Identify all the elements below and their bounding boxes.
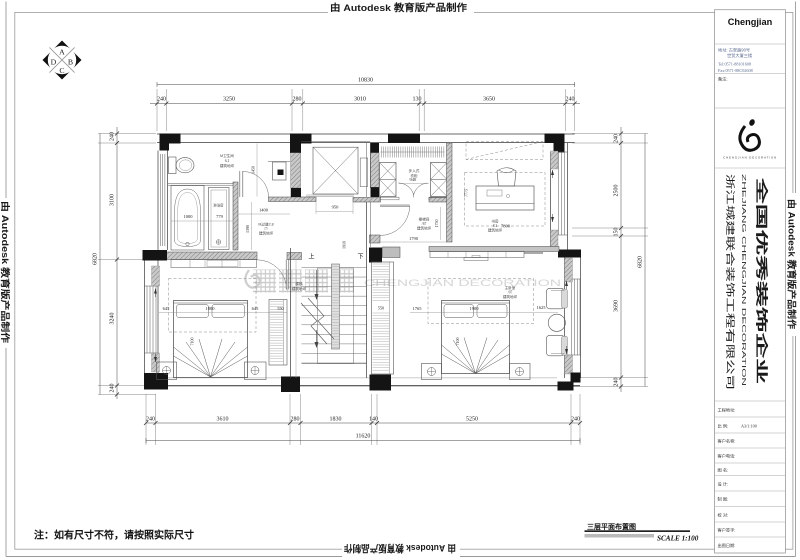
- svg-text:1400: 1400: [259, 208, 269, 213]
- svg-text:240: 240: [571, 417, 580, 423]
- svg-text:6820: 6820: [93, 253, 99, 265]
- svg-text:由 Autodesk 教育版产品制作: 由 Autodesk 教育版产品制作: [344, 542, 456, 554]
- svg-text:建筑地坪: 建筑地坪: [292, 286, 307, 291]
- svg-text:A3/1:100: A3/1:100: [741, 424, 757, 429]
- svg-text:楼梯: 楼梯: [295, 281, 303, 286]
- svg-text:240: 240: [110, 132, 116, 141]
- svg-text:140: 140: [369, 417, 378, 423]
- svg-text:5250: 5250: [466, 417, 478, 423]
- svg-text:645: 645: [163, 306, 171, 311]
- svg-text:645: 645: [252, 306, 260, 311]
- svg-text:240: 240: [110, 384, 116, 393]
- svg-text:1910: 1910: [342, 241, 347, 249]
- svg-text:全国优秀装饰企业: 全国优秀装饰企业: [755, 176, 770, 384]
- svg-text:150: 150: [614, 228, 620, 237]
- svg-text:/07: /07: [508, 291, 513, 295]
- svg-text:浙江城建联合装饰工程有限公司: 浙江城建联合装饰工程有限公司: [725, 174, 736, 390]
- svg-text:1000: 1000: [184, 214, 194, 219]
- svg-text:7775: 7775: [464, 189, 469, 197]
- svg-text:客户签字:: 客户签字:: [718, 527, 736, 534]
- svg-text:设 计:: 设 计:: [718, 481, 729, 488]
- svg-text:工程地址:: 工程地址:: [718, 407, 736, 414]
- svg-text:940: 940: [410, 177, 418, 182]
- svg-text:1750: 1750: [434, 220, 439, 228]
- svg-text:3690: 3690: [614, 300, 620, 312]
- svg-text:240: 240: [146, 417, 155, 423]
- svg-text:3010: 3010: [354, 97, 366, 103]
- svg-text:280: 280: [291, 417, 300, 423]
- svg-text:3100: 3100: [110, 194, 116, 206]
- svg-text:6.2: 6.2: [225, 159, 230, 163]
- svg-text:240: 240: [157, 97, 166, 103]
- svg-text:Tel:0571-88101608: Tel:0571-88101608: [718, 62, 751, 67]
- svg-text:比 例:: 比 例:: [718, 423, 729, 430]
- svg-text:三层平面布置图: 三层平面布置图: [587, 522, 636, 531]
- svg-text:7100: 7100: [190, 338, 195, 346]
- svg-text:由 Autodesk 教育版产品制作: 由 Autodesk 教育版产品制作: [787, 199, 798, 329]
- svg-text:M卫生间: M卫生间: [220, 153, 234, 158]
- svg-text:由 Autodesk 教育版产品制作: 由 Autodesk 教育版产品制作: [0, 201, 11, 343]
- svg-text:上: 上: [308, 253, 314, 261]
- svg-text:11620: 11620: [356, 434, 371, 440]
- svg-text:建筑地坪: 建筑地坪: [417, 226, 432, 231]
- svg-text:备注:: 备注:: [718, 76, 728, 83]
- svg-text:出图日期:: 出图日期:: [718, 542, 736, 549]
- svg-text:制 图:: 制 图:: [718, 496, 729, 503]
- svg-text:550: 550: [277, 306, 283, 311]
- svg-text:10830: 10830: [358, 78, 373, 84]
- svg-text:校 对:: 校 对:: [718, 512, 729, 519]
- svg-text:7800: 7800: [501, 224, 511, 229]
- svg-text:7100: 7100: [455, 338, 460, 346]
- svg-text:3650: 3650: [483, 97, 495, 103]
- svg-text:1830: 1830: [330, 417, 342, 423]
- svg-text:1790: 1790: [409, 236, 419, 241]
- svg-text:B: B: [68, 58, 73, 67]
- svg-text:Chengjian: Chengjian: [728, 17, 773, 27]
- svg-text:书房: 书房: [491, 219, 499, 224]
- svg-text:建筑地坪: 建筑地坪: [503, 294, 518, 299]
- svg-text:A: A: [59, 47, 65, 56]
- svg-text:M过道2.8: M过道2.8: [258, 222, 273, 227]
- svg-text:3240: 3240: [110, 313, 116, 325]
- svg-text:1390: 1390: [245, 225, 250, 233]
- svg-text:2500: 2500: [614, 185, 620, 197]
- svg-text:3610: 3610: [217, 417, 229, 423]
- svg-text:图 名:: 图 名:: [718, 467, 729, 474]
- svg-text:世贸大厦三楼: 世贸大厦三楼: [727, 52, 752, 59]
- svg-text:建筑地坪: 建筑地坪: [220, 163, 235, 168]
- svg-text:/7/: /7/: [264, 227, 268, 231]
- svg-text:注：如有尺寸不符，请按照实际尺寸: 注：如有尺寸不符，请按照实际尺寸: [34, 529, 194, 542]
- svg-text:淋浴房: 淋浴房: [213, 203, 224, 208]
- svg-text:130: 130: [413, 97, 422, 103]
- svg-text:D: D: [51, 58, 57, 67]
- svg-text:SCALE 1:100: SCALE 1:100: [657, 535, 699, 543]
- svg-text:779: 779: [216, 214, 224, 219]
- svg-text:CHENGJIAN DECORATION: CHENGJIAN DECORATION: [723, 156, 777, 160]
- svg-text:步入式: 步入式: [409, 168, 420, 173]
- svg-text:280: 280: [293, 97, 302, 103]
- svg-text:/67: /67: [422, 222, 427, 226]
- svg-text:C: C: [59, 66, 64, 75]
- svg-text:主卧室: 主卧室: [505, 285, 516, 290]
- svg-text:1900: 1900: [470, 306, 480, 311]
- svg-text:240: 240: [566, 97, 575, 103]
- svg-text:3250: 3250: [223, 97, 235, 103]
- svg-text:楼梯间: 楼梯间: [419, 217, 430, 222]
- svg-text:550: 550: [378, 306, 384, 311]
- svg-text:1800: 1800: [206, 306, 216, 311]
- svg-text:由 Autodesk 教育版产品制作: 由 Autodesk 教育版产品制作: [330, 2, 468, 14]
- svg-text:Fax:0571-88C02608: Fax:0571-88C02608: [718, 68, 753, 73]
- svg-text:240: 240: [614, 134, 620, 143]
- svg-text:建筑地坪: 建筑地坪: [259, 231, 274, 236]
- svg-text:客户电话:: 客户电话:: [718, 453, 736, 460]
- svg-text:240: 240: [614, 378, 620, 387]
- svg-text:6820: 6820: [638, 256, 644, 268]
- svg-text:1765: 1765: [413, 306, 423, 311]
- svg-text:下: 下: [357, 254, 363, 261]
- svg-text:1625: 1625: [537, 305, 547, 310]
- svg-text:950: 950: [332, 205, 340, 210]
- svg-text:ZHEJIANG CHENGJIAN DECORATIO: ZHEJIANG CHENGJIAN DECORATION: [740, 174, 746, 387]
- svg-text:客户名称:: 客户名称:: [718, 438, 736, 445]
- svg-text:8.2: 8.2: [493, 224, 498, 228]
